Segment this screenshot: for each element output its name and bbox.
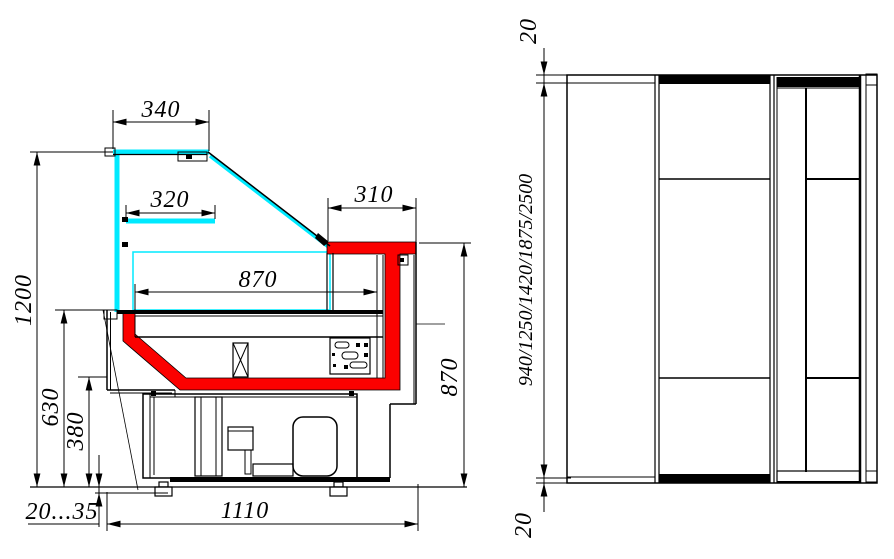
dim-foot-adjust: 20...35 [26, 499, 99, 525]
glass-panels [113, 150, 331, 312]
control-box [228, 427, 253, 450]
base-rail [170, 477, 390, 482]
section-view: 340 320 310 870 1110 20...35 1200 630 38… [11, 97, 471, 531]
shelf-bracket [122, 217, 128, 222]
plan-dimensions [536, 48, 571, 512]
machine-compartment [143, 391, 390, 496]
louver-panel [330, 338, 370, 374]
plan-view: 20 940/1250/1420/1875/2500 20 [511, 18, 877, 538]
plan-dimension-labels: 20 940/1250/1420/1875/2500 20 [511, 18, 542, 538]
adjustable-foot [155, 482, 172, 496]
end-glass-wall [133, 252, 330, 310]
dim-total-height: 1200 [11, 274, 37, 326]
lamp-icon [186, 155, 192, 159]
dim-end-overhang-top: 20 [516, 18, 542, 44]
dim-worktop-depth: 310 [354, 182, 394, 208]
dim-worktop-height: 870 [437, 358, 463, 397]
compressor [293, 417, 337, 476]
dim-base-depth: 1110 [221, 498, 269, 524]
dim-top-shelf-width: 340 [141, 97, 181, 123]
adjustable-foot [330, 482, 347, 496]
section-dimensions [28, 110, 471, 531]
dim-front-panel-height: 630 [38, 388, 64, 427]
plan-body [567, 74, 877, 483]
tray [253, 464, 293, 476]
corner-cap [866, 471, 877, 482]
shelf-bracket [122, 242, 128, 247]
dim-case-lengths: 940/1250/1420/1875/2500 [515, 174, 537, 386]
dim-mid-shelf-width: 320 [150, 187, 190, 213]
plan-outline [567, 75, 877, 483]
drawing-canvas: 340 320 310 870 1110 20...35 1200 630 38… [0, 0, 894, 559]
dim-display-bed-width: 870 [239, 267, 278, 293]
sloped-glass-frame [208, 152, 330, 246]
air-duct [195, 397, 222, 476]
dim-end-overhang-bottom: 20 [511, 512, 537, 538]
dim-base-height: 380 [63, 412, 89, 452]
technical-drawing: 340 320 310 870 1110 20...35 1200 630 38… [0, 0, 894, 559]
front-sloped-glass [210, 156, 331, 249]
